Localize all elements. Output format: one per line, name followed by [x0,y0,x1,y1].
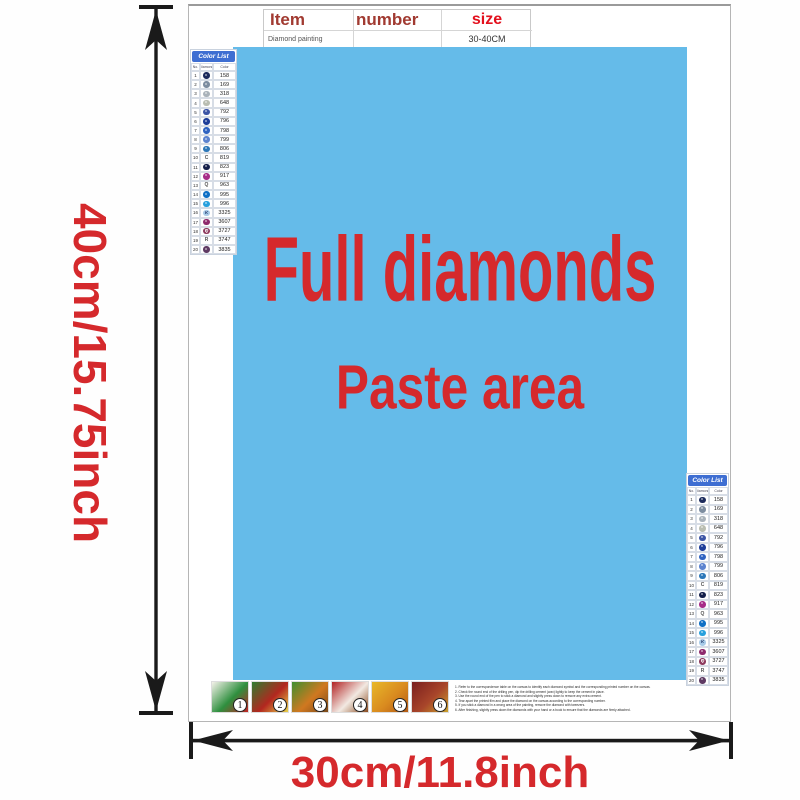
paste-area-subtitle: Paste area [336,353,584,424]
color-list-row: 2169 [191,80,236,89]
color-list-row: 9806 [687,571,728,581]
diamond-color-dot [203,201,210,208]
color-list-row: 18Q3727 [687,657,728,667]
height-arrow-icon [139,5,173,717]
spec-table-header: Item number size [264,10,532,31]
color-list-row: 5792 [687,533,728,543]
color-list-row: 15996 [191,199,236,208]
spec-header-number: number [354,10,442,30]
diamond-color-dot: Q [699,658,706,665]
color-list-row: 8799 [191,135,236,144]
step-number-badge: 1 [233,698,247,712]
diamond-color-dot [203,127,210,134]
paste-area: Full diamonds Paste area [233,47,687,680]
color-list-row: 14995 [687,619,728,629]
color-list-row: 16K3325 [191,208,236,217]
color-list-row: 14995 [191,190,236,199]
color-list-row: 2169 [687,505,728,515]
diamond-color-dot [699,592,706,599]
diamond-color-dot [203,219,210,226]
diamond-color-dot [699,677,706,684]
color-list-row: 6796 [687,543,728,553]
width-dimension-label: 30cm/11.8inch [291,748,589,798]
spec-header-size: size [442,10,532,30]
instruction-text: 1. Refer to the correspondence table on … [455,685,707,713]
diamond-color-dot [699,620,706,627]
diamond-color-dot [203,164,210,171]
color-list-title: Color List [192,51,235,62]
spec-table-row: Diamond painting 30-40CM [264,31,532,47]
color-list-rows: 11582169331846485792679677988799980610C8… [687,495,728,685]
color-list-left: Color List No. Diamond Color 11582169331… [190,49,237,255]
color-list-row: 3318 [687,514,728,524]
diamond-color-dot [203,246,210,253]
color-list-row: 203835 [687,676,728,686]
instruction-step-image: 2 [251,681,289,713]
color-list-row: 1158 [191,71,236,80]
product-image: Item number size Diamond painting 30-40C… [0,0,800,800]
instruction-line: 6. After finishing, slightly press down … [455,708,707,713]
diamond-color-dot [203,91,210,98]
color-list-row: 4648 [687,524,728,534]
color-list-row: 13Q963 [687,609,728,619]
diamond-color-dot [203,72,210,79]
step-number-badge: 4 [353,698,367,712]
color-list-row: 10C819 [191,153,236,162]
color-list-right: Color List No. Diamond Color 11582169331… [686,473,729,686]
diamond-color-dot [203,173,210,180]
diamond-color-dot [203,146,210,153]
diamond-color-dot [203,100,210,107]
diamond-color-dot: K [203,210,210,217]
color-list-row: 4648 [191,98,236,107]
spec-size-value: 30-40CM [442,31,532,47]
diamond-color-dot [699,554,706,561]
diamond-color-dot [699,497,706,504]
color-list-row: 3318 [191,89,236,98]
diamond-color-dot: K [699,639,706,646]
diamond-color-dot [699,525,706,532]
color-list-row: 12917 [191,172,236,181]
color-list-columns: No. Diamond Color [191,63,236,71]
color-list-row: 5792 [191,108,236,117]
diamond-painting-canvas: Item number size Diamond painting 30-40C… [188,4,731,722]
diamond-color-dot [699,535,706,542]
diamond-color-dot [699,601,706,608]
color-list-row: 7798 [687,552,728,562]
height-dimension-label: 40cm/15.75inch [63,203,117,543]
color-list-row: 11823 [191,163,236,172]
color-list-row: 15996 [687,628,728,638]
step-number-badge: 5 [393,698,407,712]
step-number-badge: 3 [313,698,327,712]
diamond-color-dot [203,118,210,125]
color-list-row: 13Q963 [191,181,236,190]
instruction-step-image: 1 [211,681,249,713]
color-list-row: 19R3747 [191,236,236,245]
spec-number-value [354,31,442,47]
spec-item-value: Diamond painting [264,31,354,47]
color-list-columns: No. Diamond Color [687,487,728,495]
diamond-color-dot [699,573,706,580]
diamond-color-dot [699,544,706,551]
color-list-row: 12917 [687,600,728,610]
color-list-rows: 11582169331846485792679677988799980610C8… [191,71,236,254]
instruction-step-image: 3 [291,681,329,713]
diamond-color-dot [203,136,210,143]
paste-area-title: Full diamonds [264,218,657,323]
color-list-row: 9806 [191,144,236,153]
color-list-row: 18Q3727 [191,227,236,236]
diamond-color-dot: Q [203,228,210,235]
color-list-row: 16K3325 [687,638,728,648]
diamond-color-dot [699,506,706,513]
step-number-badge: 2 [273,698,287,712]
diamond-color-dot [699,630,706,637]
color-list-title: Color List [688,475,727,486]
instruction-step-image: 5 [371,681,409,713]
spec-table: Item number size Diamond painting 30-40C… [263,9,531,48]
color-list-row: 173607 [687,647,728,657]
color-list-row: 8799 [687,562,728,572]
instruction-step-image: 4 [331,681,369,713]
spec-header-item: Item [264,10,354,30]
diamond-color-dot [699,649,706,656]
color-list-row: 1158 [687,495,728,505]
color-list-row: 11823 [687,590,728,600]
diamond-color-dot [203,81,210,88]
instruction-images: 123456 [211,681,449,713]
color-list-row: 203835 [191,245,236,254]
instruction-step-image: 6 [411,681,449,713]
diamond-color-dot [203,109,210,116]
diamond-color-dot [699,516,706,523]
color-list-row: 6796 [191,117,236,126]
color-list-row: 173607 [191,218,236,227]
color-list-row: 10C819 [687,581,728,591]
diamond-color-dot [203,191,210,198]
step-number-badge: 6 [433,698,447,712]
color-list-row: 7798 [191,126,236,135]
diamond-color-dot [699,563,706,570]
color-list-row: 19R3747 [687,666,728,676]
